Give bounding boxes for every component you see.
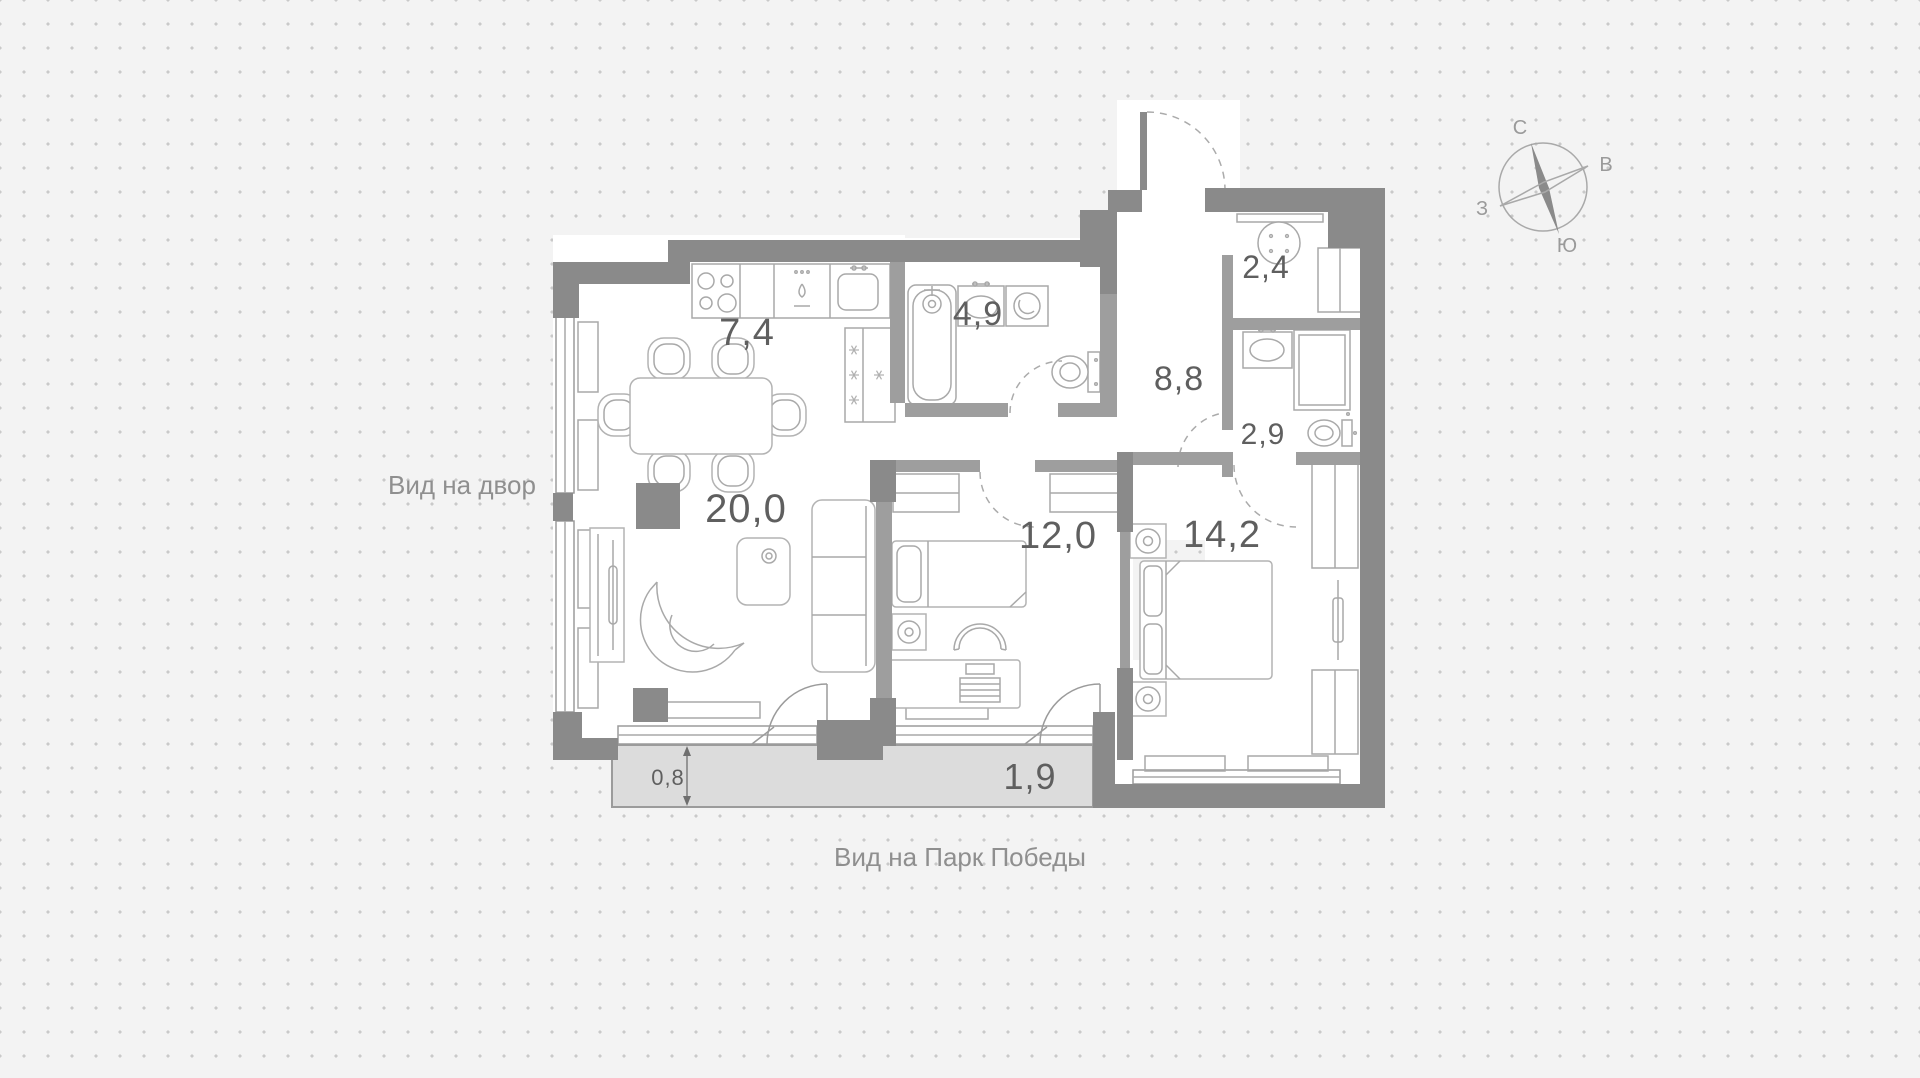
- compass-east-label: В: [1599, 154, 1612, 176]
- balcony-area-label: 1,9: [1003, 756, 1056, 797]
- single-bed: [892, 541, 1026, 607]
- sofa: [812, 500, 875, 672]
- dining-table: [630, 378, 772, 454]
- compass-needle: [1531, 143, 1559, 234]
- desk: [888, 660, 1020, 708]
- bathroom-guest-area-label: 2,9: [1241, 418, 1286, 451]
- hallway-area-label: 8,8: [1154, 360, 1204, 398]
- balcony-depth-label: 0,8: [651, 765, 685, 790]
- compass-south-label: Ю: [1557, 235, 1577, 257]
- fridge-icon: [845, 328, 895, 422]
- kitchen-area-label: 7,4: [719, 312, 775, 354]
- bedroom-master-area-label: 14,2: [1183, 514, 1261, 556]
- compass-north-label: С: [1513, 117, 1527, 139]
- nightstand-lamp: [1130, 524, 1166, 558]
- bathroom-main-area-label: 4,9: [953, 295, 1003, 333]
- compass-rose: С В З Ю: [1476, 117, 1613, 257]
- nightstand-lamp: [1130, 682, 1166, 716]
- washing-machine-icon: [1006, 286, 1048, 326]
- column: [633, 688, 668, 722]
- bedroom-child-area-label: 12,0: [1019, 515, 1097, 557]
- guest-sink-icon: [1243, 328, 1292, 368]
- compass-west-label: З: [1476, 198, 1488, 220]
- floor-plan-page: С В З Ю 7,4 4,9 2,4 8,8 2,9 20,0 12,0 14…: [0, 0, 1920, 1078]
- column: [636, 483, 680, 529]
- nightstand-lamp: [892, 614, 926, 650]
- floor-plan: С В З Ю 7,4 4,9 2,4 8,8 2,9 20,0 12,0 14…: [0, 0, 1920, 1078]
- entry-door-leaf: [1140, 112, 1147, 190]
- coffee-table: [737, 538, 790, 605]
- tv-console: [590, 528, 624, 662]
- double-bed: [1140, 561, 1272, 679]
- shower-icon: [1294, 330, 1350, 410]
- bathtub-icon: [908, 285, 956, 405]
- wardrobe-room-area-label: 2,4: [1242, 249, 1289, 285]
- living-room-area-label: 20,0: [705, 487, 787, 531]
- view-park-label: Вид на Парк Победы: [834, 842, 1086, 872]
- view-courtyard-label: Вид на двор: [388, 470, 536, 500]
